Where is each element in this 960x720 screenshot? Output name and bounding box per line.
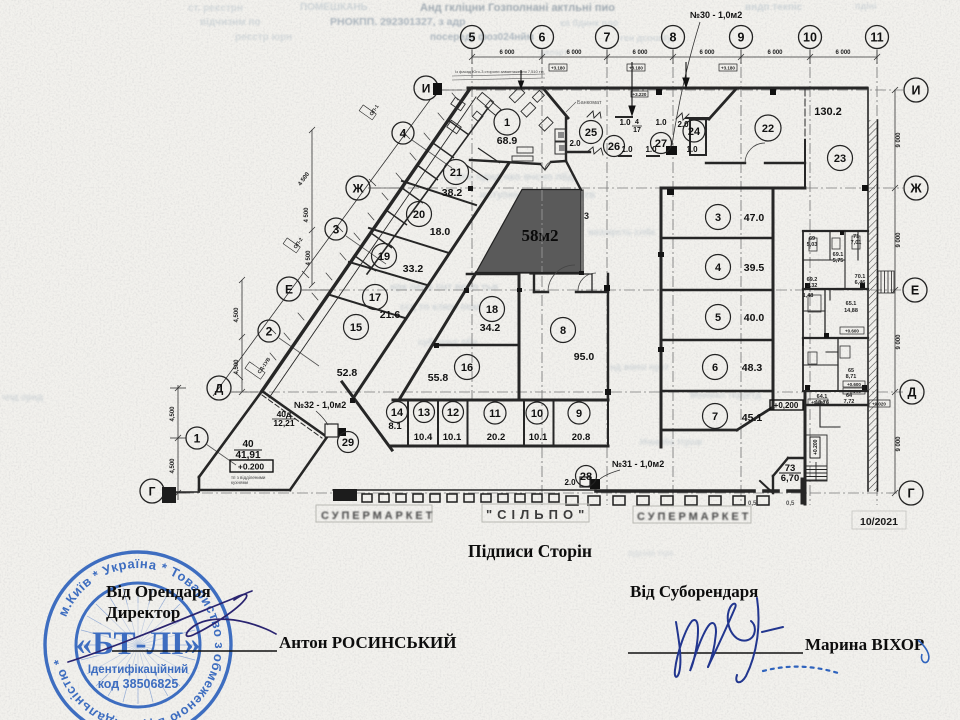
svg-text:4 500: 4 500 [306,250,312,266]
svg-text:6 000: 6 000 [835,50,851,56]
svg-text:СУПЕРМАРКЕТ: СУПЕРМАРКЕТ [637,511,751,523]
svg-text:вндп текпіс: вндп текпіс [745,2,803,13]
svg-text:1: 1 [194,432,201,446]
svg-text:21.6: 21.6 [380,309,401,321]
svg-text:код 38506825: код 38506825 [98,677,179,691]
svg-text:чпд орнд: чпд орнд [2,392,43,402]
svg-text:Д: Д [908,386,917,400]
svg-text:6 000: 6 000 [499,50,515,56]
svg-text:1: 1 [504,117,510,129]
svg-text:34.2: 34.2 [480,322,501,334]
svg-text:№30 - 1,0м2: №30 - 1,0м2 [690,10,742,20]
svg-text:1.0: 1.0 [686,145,698,154]
svg-text:22: 22 [762,123,774,135]
svg-text:7,01: 7,01 [851,240,862,246]
svg-text:РНОКПП. 292301327, з адр: РНОКПП. 292301327, з адр [330,16,466,28]
svg-text:33.2: 33.2 [403,263,424,275]
svg-text:Антон РОСИНСЬКИЙ: Антон РОСИНСЬКИЙ [279,633,456,652]
svg-text:28: 28 [580,471,592,483]
svg-text:+0.200: +0.200 [813,439,819,455]
svg-text:ген дcounty: ген дcounty [620,33,672,43]
svg-text:25: 25 [585,127,597,139]
svg-text:6 000: 6 000 [767,50,783,56]
svg-text:1.0: 1.0 [619,118,631,127]
svg-text:4,500: 4,500 [170,458,176,474]
svg-text:+0.600: +0.600 [847,382,861,387]
svg-text:20: 20 [413,209,425,221]
svg-text:4,500: 4,500 [234,359,240,375]
svg-text:1.0: 1.0 [621,145,633,154]
svg-text:13: 13 [418,407,430,419]
svg-text:40: 40 [242,439,254,450]
svg-text:+0.020: +0.020 [872,402,886,407]
svg-text:7: 7 [604,31,611,45]
svg-text:9: 9 [576,408,582,420]
svg-text:Е: Е [285,283,293,297]
svg-text:відчизнм по: відчизнм по [200,17,261,28]
svg-text:+0.600: +0.600 [845,329,859,334]
svg-text:45.1: 45.1 [742,412,763,424]
svg-text:16: 16 [461,362,473,374]
svg-text:пдснв тսн: пдснв тսн [628,548,673,558]
svg-text:+3.180: +3.180 [629,66,643,71]
svg-text:4: 4 [400,127,407,141]
svg-text:39.5: 39.5 [744,262,765,274]
svg-text:втм пднд нко вчсно пбд: втм пднд нко вчсно пбд [455,171,574,183]
svg-text:27: 27 [655,138,667,150]
svg-text:СУПЕРМАРКЕТ: СУПЕРМАРКЕТ [321,510,435,522]
svg-text:6 000: 6 000 [632,50,648,56]
svg-text:29: 29 [342,437,354,449]
svg-text:+0.200: +0.200 [847,389,861,394]
svg-text:посередг фоз024нйм: посередг фоз024нйм [430,31,534,43]
svg-text:6,70: 6,70 [781,473,800,484]
svg-text:2.0: 2.0 [564,478,576,487]
svg-text:17: 17 [369,292,381,304]
svg-text:9 000: 9 000 [896,334,902,350]
svg-text:пдіні: пдіні [855,1,877,11]
svg-text:Марина ВІХОР: Марина ВІХОР [805,635,924,654]
svg-text:№32 - 1,0м2: №32 - 1,0м2 [294,400,346,410]
svg-text:7,72: 7,72 [844,399,855,405]
svg-text:Г: Г [149,485,156,499]
svg-text:2.0: 2.0 [569,139,581,148]
svg-text:9 000: 9 000 [896,436,902,452]
svg-text:12: 12 [447,407,459,419]
svg-text:23: 23 [834,153,846,165]
svg-text:5: 5 [469,31,476,45]
svg-text:Д: Д [215,382,224,396]
svg-text:58м2: 58м2 [521,226,558,245]
svg-text:68.9: 68.9 [497,135,518,147]
svg-text:Ідентифікаційний: Ідентифікаційний [88,664,188,676]
svg-text:5,75: 5,75 [833,258,844,264]
svg-text:48.3: 48.3 [742,362,763,374]
svg-text:0,5: 0,5 [786,501,795,507]
svg-text:12,21: 12,21 [273,418,295,428]
svg-text:Е: Е [911,284,919,298]
svg-text:+0,200: +0,200 [774,401,799,410]
svg-text:3,32: 3,32 [807,283,818,289]
svg-text:4,500: 4,500 [234,307,240,323]
svg-text:14,88: 14,88 [844,308,858,314]
svg-text:Із фасад Юго-3 сторони заванта: Із фасад Юго-3 сторони завантаження 7,51… [455,69,544,74]
svg-text:47.0: 47.0 [744,212,765,224]
svg-text:40.0: 40.0 [744,312,765,324]
svg-text:«БТ-ЛІ»: «БТ-ЛІ» [76,626,201,662]
svg-text:8.1: 8.1 [388,421,402,432]
svg-text:Від Орендаря: Від Орендаря [106,582,211,601]
svg-text:26: 26 [608,141,620,153]
svg-text:1,48: 1,48 [803,293,814,299]
svg-text:нрк перх счт вебп тьв: нрк перх счт вебп тьв [390,281,498,293]
svg-text:18.0: 18.0 [430,226,451,238]
svg-text:130.2: 130.2 [814,106,842,118]
svg-text:Ж: Ж [909,182,922,196]
svg-text:Г: Г [907,487,914,501]
svg-text:3: 3 [333,223,340,237]
svg-text:20.2: 20.2 [487,432,506,443]
svg-text:19: 19 [378,251,390,263]
svg-text:9 000: 9 000 [896,232,902,248]
svg-text:ст. реєстрн: ст. реєстрн [188,3,243,14]
svg-text:5,03: 5,03 [807,242,818,248]
svg-text:3: 3 [715,212,721,224]
svg-text:6: 6 [712,362,718,374]
svg-text:1.0: 1.0 [655,118,667,127]
svg-text:55.8: 55.8 [428,372,449,384]
svg-text:8: 8 [560,325,566,337]
svg-text:+0.200: +0.200 [238,462,265,472]
svg-text:8,71: 8,71 [846,374,857,380]
svg-text:Анд гкліцни Гозполнані актльні: Анд гкліцни Гозполнані актльні пио [420,2,615,14]
svg-text:6 000: 6 000 [699,50,715,56]
svg-text:17: 17 [633,127,641,134]
svg-text:10/2021: 10/2021 [860,516,898,528]
svg-text:10.4: 10.4 [414,432,433,443]
svg-text:9: 9 [738,31,745,45]
svg-text:жнхмрсть слбк: жнхмрсть слбк [587,227,656,237]
svg-text:52.8: 52.8 [337,367,358,379]
svg-text:4,500: 4,500 [170,406,176,422]
svg-text:4: 4 [715,262,722,274]
svg-text:Підписи Сторін: Підписи Сторін [468,541,592,561]
svg-text:4 500: 4 500 [304,207,310,223]
svg-text:65.1: 65.1 [846,301,857,307]
svg-text:Нчнмба тгрсм: Нчнмба тгрсм [640,437,702,447]
svg-text:Банкомат: Банкомат [577,100,602,106]
svg-text:кухнями: кухнями [231,480,249,485]
svg-text:Директор: Директор [106,603,180,622]
svg-text:15: 15 [350,322,362,334]
svg-text:21: 21 [450,167,462,179]
svg-text:3: 3 [584,211,589,221]
svg-text:9 000: 9 000 [896,132,902,148]
svg-text:2.0: 2.0 [677,120,689,129]
svg-text:5: 5 [715,312,721,324]
svg-text:И: И [912,84,921,98]
svg-text:11: 11 [870,31,883,45]
svg-text:2: 2 [266,325,273,339]
svg-text:департ: департ [540,48,568,57]
svg-text:4: 4 [635,119,639,126]
svg-text:10: 10 [531,408,543,420]
svg-text:+0.690: +0.690 [811,400,825,405]
svg-text:6 000: 6 000 [566,50,582,56]
svg-text:"СІЛЬПО": "СІЛЬПО" [486,507,589,522]
svg-text:реєстр юрн: реєстр юрн [235,32,292,43]
svg-text:И: И [422,82,431,96]
svg-text:+3.180: +3.180 [721,66,735,71]
svg-text:Ж: Ж [352,182,364,196]
svg-text:11: 11 [489,408,501,420]
svg-text:+3.180: +3.180 [551,66,565,71]
svg-text:ПОМЕШКАНЬ: ПОМЕШКАНЬ [300,2,368,13]
svg-text:10.1: 10.1 [529,432,548,443]
svg-text:10.1: 10.1 [443,432,462,443]
svg-text:38.2: 38.2 [442,187,463,199]
svg-text:20.8: 20.8 [572,432,591,443]
svg-text:6: 6 [539,31,546,45]
svg-text:8: 8 [670,31,677,45]
svg-text:95.0: 95.0 [574,351,595,363]
svg-text:14: 14 [391,407,404,419]
svg-text:+3.220: +3.220 [633,92,647,97]
svg-text:6,46: 6,46 [855,280,866,286]
svg-text:24: 24 [688,126,701,138]
svg-text:1.0: 1.0 [645,145,657,154]
svg-text:7: 7 [712,411,718,423]
svg-text:18: 18 [486,304,498,316]
svg-text:№31 - 1,0м2: №31 - 1,0м2 [612,459,664,469]
svg-text:10: 10 [803,31,817,45]
svg-text:Від Суборендаря: Від Суборендаря [630,582,758,601]
